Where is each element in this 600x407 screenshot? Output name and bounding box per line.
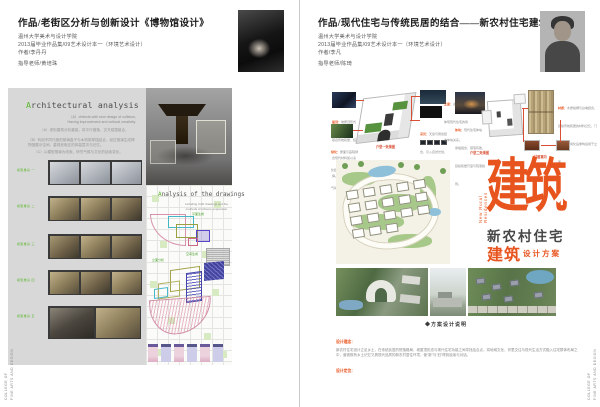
- gallery-caption: ◆方案设计说明: [336, 321, 556, 328]
- architectural-analysis-title: Architectural analysis: [26, 100, 139, 110]
- right-page-title: 作品/现代住宅与传统民居的结合——新农村住宅建筑设计: [318, 15, 569, 29]
- right-school-line: 温州大学美术与设计学院: [318, 33, 377, 40]
- left-page-title: 作品/老街区分析与创新设计《博物馆设计》: [18, 15, 209, 29]
- leader-line: [541, 145, 556, 146]
- model-photo: [50, 308, 94, 338]
- leader-line: [560, 120, 561, 142]
- analysis-paragraph: （A）老街建筑分析重组，将平行错落、交叉碰撞组合，: [40, 128, 138, 133]
- model-photo: [50, 198, 79, 220]
- analysis-paragraph: （B）利用不同尺度的玻璃盒子与木构架穿插结合，经过推演生成博物馆展示空间，重现老…: [28, 138, 138, 148]
- aerial-render-photo: [336, 268, 428, 316]
- portrait-face: [554, 21, 571, 41]
- left-author-line: 作者/李丹丹: [18, 49, 47, 56]
- wood-texture-photo: [528, 90, 554, 134]
- model-photo: [112, 236, 141, 258]
- model-photo-row: [48, 306, 141, 339]
- right-advisor-line: 指导老师/陈琦: [318, 60, 352, 67]
- model-photo: [50, 162, 79, 184]
- student-portrait-photo: [540, 11, 585, 72]
- render-road: [468, 306, 556, 313]
- glass-model: [196, 120, 226, 154]
- design-description: 设计理念： 新农村住宅设计立足乡土，在传统民居的院落格局、坡屋顶形态与现代住宅功…: [336, 330, 582, 374]
- left-advisor-line: 指导老师/黄培珠: [18, 60, 57, 67]
- analysis-intro-en: （A）chitects with new design of collision…: [32, 115, 136, 126]
- brand-subtitle-2: 建筑设计方案: [487, 241, 561, 265]
- photo-vignette: [146, 159, 232, 185]
- reference-photo: [420, 106, 442, 118]
- pavilion-column: [176, 116, 188, 144]
- student-portrait-photo: [238, 10, 284, 72]
- model-photo-row: [48, 234, 142, 259]
- college-vertical-text: COLLEGE OF FINE ARTS AND DESIGN: [3, 326, 15, 400]
- reference-photo: [420, 90, 446, 104]
- right-edition-line: 2013届毕业作品集/09艺术设计本一（环境艺术设计）: [318, 41, 446, 48]
- axon-wireframe: [154, 287, 168, 299]
- axon-roof-block: [204, 261, 224, 281]
- render-pond: [526, 270, 554, 284]
- render-building: [402, 275, 421, 285]
- village-aerial-render-photo: [468, 268, 556, 316]
- cad-plan-rect: [188, 238, 198, 246]
- description-section: 设计理念： 新农村住宅设计立足乡土，在传统民居的院落格局、坡屋顶形态与现代住宅功…: [336, 330, 582, 358]
- model-photo: [81, 236, 110, 258]
- model-window: [497, 111, 501, 117]
- model-photo-row: [48, 196, 142, 221]
- intro-line: methods of scheme expression.: [172, 207, 228, 212]
- model-window: [384, 113, 394, 126]
- college-vertical-text: COLLEGE OF FINE ARTS AND DESIGN: [586, 326, 598, 400]
- model-photo: [50, 236, 79, 258]
- model-caption: 户型一效果图: [376, 144, 395, 149]
- model-photo: [112, 162, 141, 184]
- left-school-line: 温州大学美术与设计学院: [18, 33, 77, 40]
- render-building: [400, 294, 421, 304]
- house-massing-model: [487, 99, 523, 137]
- left-edition-line: 2013届毕业作品集/09艺术设计本一（环境艺术设计）: [18, 41, 146, 48]
- leader-line: [356, 100, 364, 101]
- render-building: [433, 298, 462, 307]
- house-massing-model: [356, 92, 417, 144]
- cad-label: 立面分析: [152, 258, 164, 262]
- render-building: [438, 292, 452, 298]
- model-photo: [96, 308, 140, 338]
- cad-plan-rect: [176, 224, 198, 238]
- render-water: [339, 300, 363, 310]
- page-fold-divider: [299, 0, 300, 407]
- leader-line: [411, 96, 412, 121]
- annotation-note: 材质：木质格栅与白墙结合，延续传统民居的材料记忆，门窗符号经简化后重构运用于立面…: [558, 96, 598, 168]
- leader-line: [523, 108, 524, 142]
- pavilion-model-photo: [146, 88, 232, 185]
- brand-suffix: 设计方案: [523, 249, 561, 258]
- drawings-analysis-title: Analysis of the drawings: [158, 191, 245, 198]
- elevation-item: [148, 344, 158, 362]
- elevation-item: [213, 344, 223, 362]
- elevation-item: [187, 344, 197, 362]
- photo-row-label: 模型推演·五: [17, 314, 35, 318]
- elevation-item: [174, 344, 184, 362]
- elevation-item: [161, 344, 171, 362]
- model-photo: [50, 272, 79, 294]
- photo-row-label: 模型推演·四: [17, 278, 35, 282]
- model-photo: [112, 198, 141, 220]
- leader-line: [412, 96, 420, 97]
- master-site-plan: [336, 160, 450, 264]
- model-cube: [513, 94, 526, 105]
- model-photo: [81, 272, 110, 294]
- cad-plan-rect: [196, 230, 210, 242]
- title-rest: rchitectural analysis: [31, 100, 139, 110]
- description-section: 设计定位： 面向新农村建设的集合式住宅，满足农村家庭的居住、生产与交往需求。: [336, 359, 582, 374]
- analysis-paragraph: （C）以模型推演为线索，研究气候与文化的延续变化。: [34, 150, 136, 155]
- door-detail-photo: [556, 140, 570, 151]
- model-photo: [81, 162, 110, 184]
- drawings-intro-en: Including CAD drawings and the methods o…: [172, 202, 228, 211]
- cad-label: 空间生成: [186, 252, 198, 256]
- model-photo-row: [48, 270, 142, 295]
- reference-photo: [332, 92, 356, 108]
- door-detail-photo: [524, 140, 540, 151]
- render-arch-opening: [375, 288, 387, 302]
- photo-row-label: 模型推演·二: [17, 204, 35, 208]
- model-cube: [481, 110, 492, 125]
- catalog-spread: 作品/老街区分析与创新设计《博物馆设计》 温州大学美术与设计学院 2013届毕业…: [0, 0, 600, 407]
- right-author-line: 作者/李凡: [318, 49, 341, 56]
- elevation-item: [200, 344, 210, 362]
- title-rest: nalysis of the drawings: [162, 191, 245, 198]
- leader-line: [353, 130, 363, 131]
- elevation-strip: [148, 344, 223, 362]
- college-line: FINE ARTS AND DESIGN: [9, 326, 15, 400]
- green-roof-patch: [392, 101, 408, 111]
- intro-line: Having improvement and cultural creativi…: [32, 120, 136, 125]
- model-photo: [81, 198, 110, 220]
- pavilion-roof: [158, 104, 206, 116]
- portrait-torso: [545, 41, 580, 72]
- model-window: [507, 119, 512, 126]
- street-render-photo: [430, 268, 466, 316]
- brand-big-characters: 建筑: [486, 158, 563, 216]
- model-photo-row: [48, 160, 142, 185]
- model-photo: [112, 272, 141, 294]
- photo-row-label: 模型推演·一: [17, 168, 35, 172]
- college-line: FINE ARTS AND DESIGN: [592, 326, 598, 400]
- photo-row-label: 模型推演·三: [17, 242, 35, 246]
- brand-vertical-english: New Rural Residences: [478, 163, 488, 223]
